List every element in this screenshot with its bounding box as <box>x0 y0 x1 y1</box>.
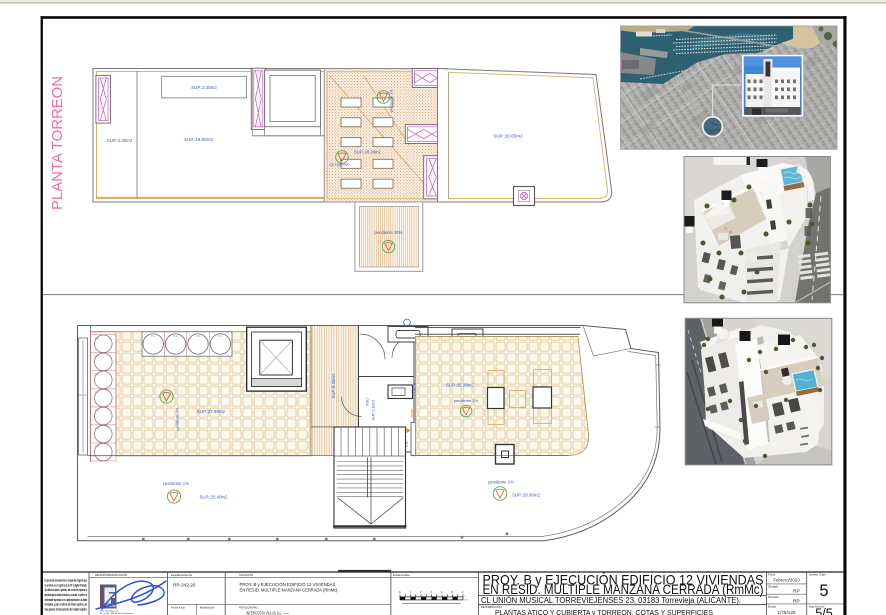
svg-text:EN RESID. MULTIPLE MANZANA CER: EN RESID. MULTIPLE MANZANA CERRADA (RmMc… <box>240 588 339 593</box>
svg-text:1/75/125: 1/75/125 <box>778 610 796 615</box>
svg-text:INTERCOSTA VILLAS S.L. ——: INTERCOSTA VILLAS S.L. —— <box>246 611 289 615</box>
svg-text:SUP.:20.26m2: SUP.:20.26m2 <box>354 150 381 155</box>
svg-text:CL UNIÓN MUSICAL TORREVIEJENSE: CL UNIÓN MUSICAL TORREVIEJENSES 23, 0318… <box>481 596 741 605</box>
svg-text:Numero Orden: Numero Orden <box>809 572 827 576</box>
svg-text:PETICIONARIO:: PETICIONARIO: <box>239 605 259 609</box>
svg-text:Expediente/Fecha: Expediente/Fecha <box>171 573 192 577</box>
svg-text:SUP.:19.60m2: SUP.:19.60m2 <box>184 137 214 142</box>
svg-text:Dibujado: Dibujado <box>768 585 779 589</box>
svg-text:se archiva en el registro de l: se archiva en el registro de la OT y dig… <box>45 583 88 587</box>
svg-text:PROY. B y EJECUCIÓN EDIFICIO: PROY. B y EJECUCIÓN EDIFICIO 12 VIVIENDA… <box>240 582 336 587</box>
svg-text:SUP.:4.30m2: SUP.:4.30m2 <box>107 138 133 143</box>
svg-text:pendiente 1%: pendiente 1% <box>454 398 479 403</box>
svg-text:aprobacion a todos terceros, c: aprobacion a todos terceros, cuando el p… <box>45 593 88 597</box>
svg-text:SUP.:28.90m2: SUP.:28.90m2 <box>512 493 541 498</box>
svg-text:RP: RP <box>793 599 800 605</box>
svg-text:Fecha: Fecha <box>768 572 776 576</box>
svg-text:pendiente 1%: pendiente 1% <box>390 89 394 112</box>
svg-text:pendiente 1%: pendiente 1% <box>163 481 189 486</box>
svg-text:Modificación: Modificación <box>200 605 215 609</box>
svg-text:P-2: P-2 <box>95 446 99 449</box>
svg-text:SUP.:8.20m2: SUP.:8.20m2 <box>331 373 336 399</box>
svg-text:SUP.:25.95m2: SUP.:25.95m2 <box>446 383 475 388</box>
svg-text:Su difusion total o parcial, a: Su difusion total o parcial, asi como su… <box>45 588 88 592</box>
svg-text:P-8: P-8 <box>95 337 99 340</box>
svg-text:SUP.:2.45m2: SUP.:2.45m2 <box>191 85 217 90</box>
svg-text:Revisado: Revisado <box>768 595 779 599</box>
svg-text:Escala Grafica: Escala Grafica <box>393 573 410 577</box>
svg-text:RR-342-20: RR-342-20 <box>173 583 196 588</box>
svg-text:RP: RP <box>793 589 800 595</box>
svg-text:Escala: Escala <box>768 604 776 608</box>
svg-text:pendiente 1%: pendiente 1% <box>488 480 514 485</box>
svg-text:SUP.:2.30m2: SUP.:2.30m2 <box>372 400 376 420</box>
svg-text:P-2: P-2 <box>174 335 178 338</box>
svg-text:delineante aprueba de su plan: delineante aprueba de su plan aplicable … <box>45 598 88 602</box>
svg-text:5/5: 5/5 <box>815 607 832 615</box>
svg-text:P-4: P-4 <box>95 410 99 413</box>
svg-text:El presente documento es copia: El presente documento es copia del origi… <box>45 579 88 583</box>
svg-text:P-1: P-1 <box>151 335 155 338</box>
svg-text:Febrero/2023: Febrero/2023 <box>773 578 800 583</box>
svg-text:P-3: P-3 <box>196 335 200 338</box>
svg-text:SUP.:20.65m2: SUP.:20.65m2 <box>493 134 523 139</box>
svg-text:5: 5 <box>819 582 828 600</box>
svg-text:normativa, y para el efecto de: normativa, y para el efecto del citado r… <box>45 603 88 607</box>
svg-text:P-5: P-5 <box>95 391 99 394</box>
svg-text:P-6: P-6 <box>95 373 99 376</box>
svg-text:SUP.:27.95m2: SUP.:27.95m2 <box>197 409 226 414</box>
svg-text:pendiente 30%: pendiente 30% <box>375 230 403 235</box>
svg-text:PLANTA TORREON: PLANTA TORREON <box>49 76 66 210</box>
svg-text:pendiente 1%: pendiente 1% <box>176 407 180 431</box>
svg-text:P-7: P-7 <box>95 355 99 358</box>
svg-text:(g) equipado: (g) equipado <box>329 163 349 167</box>
svg-text:P-3: P-3 <box>95 428 99 431</box>
svg-text:RSU: RSU <box>366 398 370 406</box>
svg-text:mas planos del documento del c: mas planos del documento del citado regi… <box>45 607 88 611</box>
svg-text:5 m: 5 m <box>465 600 469 602</box>
svg-text:P-4: P-4 <box>219 335 223 338</box>
svg-text:Fecha inicio: Fecha inicio <box>171 605 185 609</box>
svg-text:PLANTAS ATICO Y CUBIERTA y TOR: PLANTAS ATICO Y CUBIERTA y TORREON, COTA… <box>495 608 713 615</box>
svg-text:SUP.:20.40m2: SUP.:20.40m2 <box>200 495 229 500</box>
